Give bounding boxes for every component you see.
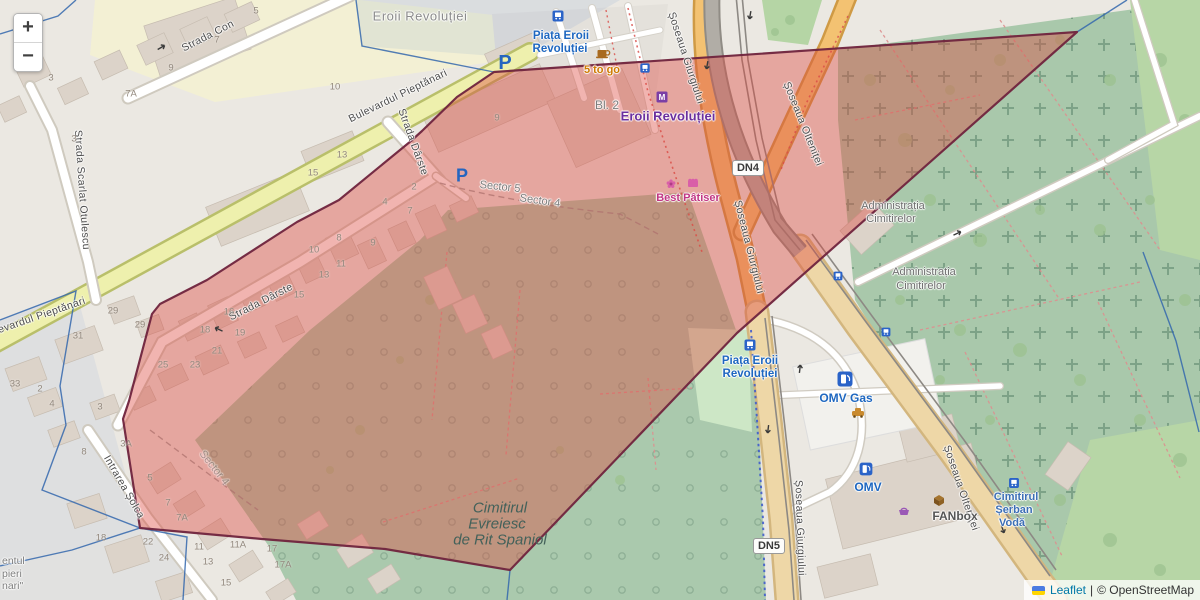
svg-text:P: P xyxy=(456,165,468,185)
bus-stop-icon xyxy=(745,340,756,351)
zoom-out-button[interactable]: − xyxy=(14,42,42,71)
osm-copyright: © OpenStreetMap xyxy=(1097,580,1194,600)
attribution-bar: Leaflet | © OpenStreetMap xyxy=(1024,580,1200,600)
fuel-station-icon xyxy=(838,372,853,387)
bus-stop-icon xyxy=(640,63,649,72)
svg-text:P: P xyxy=(498,52,511,74)
bakery-icon xyxy=(688,179,698,187)
fuel-station-icon xyxy=(860,463,873,476)
map-canvas[interactable]: PPM Strada ConStrada Scarlat OtulescuBul… xyxy=(0,0,1200,600)
bus-stop-icon xyxy=(882,328,891,337)
metro-icon: M xyxy=(657,92,668,103)
oneway-arrow-icon xyxy=(747,11,753,20)
bus-stop-icon xyxy=(1009,478,1019,488)
map-graphics: PPM xyxy=(0,0,1200,600)
bus-stop-icon xyxy=(834,272,843,281)
zoom-control[interactable]: + − xyxy=(13,13,43,72)
svg-text:M: M xyxy=(659,93,666,102)
bus-stop-icon xyxy=(553,11,564,22)
leaflet-link[interactable]: Leaflet xyxy=(1050,580,1086,600)
zoom-in-button[interactable]: + xyxy=(14,14,42,42)
parking-icon: P xyxy=(498,52,511,74)
attribution-separator: | xyxy=(1090,580,1093,600)
ukraine-flag-icon xyxy=(1032,586,1045,595)
parking-icon: P xyxy=(456,165,468,185)
